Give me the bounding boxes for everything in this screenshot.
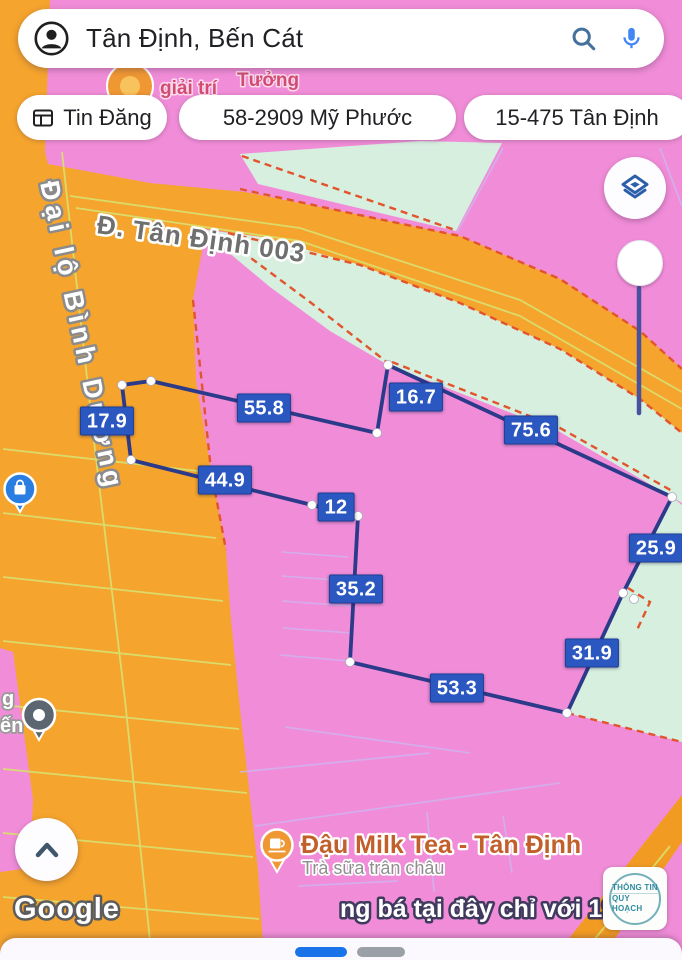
map-label-fragment: Tưởng: [237, 70, 299, 91]
edge-label-fragment: ến: [0, 715, 23, 737]
collapse-up-button[interactable]: [15, 818, 78, 881]
measure-label: 55.8: [237, 394, 291, 423]
chip-parcel-1[interactable]: 58-2909 Mỹ Phước: [179, 95, 456, 140]
measure-label: 25.9: [629, 534, 682, 563]
progress-pill-gray: [357, 947, 405, 957]
measure-label: 75.6: [504, 416, 558, 445]
measure-label: 53.3: [430, 674, 484, 703]
measure-label: 16.7: [389, 383, 443, 412]
map-app-screen: giải trí Tưởng Đ. Tân Định 003 Đại lộ Bì…: [0, 0, 682, 960]
stamp-line2: QUY HOẠCH: [611, 894, 659, 914]
stamp-ring: THÔNG TIN QUY HOẠCH: [609, 873, 661, 925]
account-button[interactable]: [33, 20, 70, 57]
map-canvas[interactable]: giải trí Tưởng Đ. Tân Định 003 Đại lộ Bì…: [0, 0, 682, 960]
measure-label: 44.9: [198, 466, 252, 495]
measure-label: 12: [318, 493, 355, 522]
poi-dot-icon: [33, 709, 45, 721]
progress-pill-blue: [295, 947, 347, 957]
listings-icon: [32, 107, 54, 129]
milk-tea-label: Đậu Milk Tea - Tân Định: [301, 831, 581, 859]
chip-parcel-2[interactable]: 15-475 Tân Định: [464, 95, 682, 140]
milk-tea-sub: Trà sữa trân châu: [302, 858, 444, 878]
edge-label-fragment: g: [2, 688, 14, 710]
search-bar[interactable]: Tân Định, Bến Cát: [18, 9, 664, 68]
measure-label: 35.2: [329, 575, 383, 604]
layers-button[interactable]: [604, 157, 666, 219]
chip-label: 15-475 Tân Định: [495, 105, 659, 131]
search-input[interactable]: Tân Định, Bến Cát: [86, 23, 569, 54]
bottom-sheet-handle[interactable]: [0, 938, 682, 960]
voice-search-button[interactable]: [618, 25, 645, 52]
chip-label: Tin Đăng: [63, 105, 151, 131]
google-logo: Google: [14, 893, 120, 925]
planning-info-stamp: THÔNG TIN QUY HOẠCH: [603, 867, 667, 930]
account-icon: [33, 20, 70, 57]
measure-label: 31.9: [565, 639, 619, 668]
search-button[interactable]: [569, 24, 598, 53]
chip-listings[interactable]: Tin Đăng: [17, 95, 167, 140]
stamp-line1: THÔNG TIN: [611, 883, 659, 894]
microphone-icon: [618, 25, 645, 52]
ad-watermark: ng bá tại đây chỉ với 19k: [340, 895, 630, 923]
layers-icon: [619, 172, 651, 204]
chevron-up-icon: [30, 835, 64, 865]
measure-label: 17.9: [80, 407, 134, 436]
search-icon: [569, 24, 598, 53]
chip-label: 58-2909 Mỹ Phước: [223, 105, 412, 131]
